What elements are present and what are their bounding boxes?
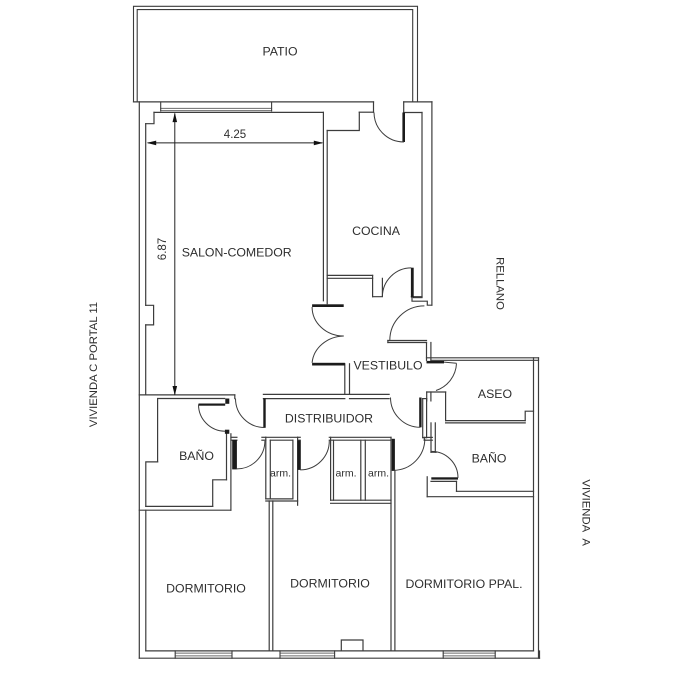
svg-text:arm.: arm. [336, 468, 357, 480]
svg-text:SALON-COMEDOR: SALON-COMEDOR [182, 245, 292, 259]
svg-text:BAÑO: BAÑO [179, 449, 214, 463]
svg-text:4.25: 4.25 [224, 129, 246, 141]
svg-text:DORMITORIO PPAL.: DORMITORIO PPAL. [405, 577, 522, 591]
svg-text:COCINA: COCINA [352, 224, 401, 238]
svg-text:arm.: arm. [368, 468, 389, 480]
svg-text:RELLANO: RELLANO [494, 257, 506, 310]
svg-text:DISTRIBUIDOR: DISTRIBUIDOR [285, 411, 373, 425]
svg-text:VIVIENDA C PORTAL 11: VIVIENDA C PORTAL 11 [88, 302, 100, 427]
svg-text:VESTIBULO: VESTIBULO [353, 359, 422, 373]
svg-text:DORMITORIO: DORMITORIO [166, 581, 246, 595]
svg-text:PATIO: PATIO [262, 45, 297, 59]
svg-text:6.87: 6.87 [157, 238, 169, 260]
svg-text:ASEO: ASEO [478, 387, 512, 401]
svg-text:DORMITORIO: DORMITORIO [290, 576, 370, 590]
svg-text:arm.: arm. [270, 468, 291, 480]
svg-text:BAÑO: BAÑO [472, 451, 507, 465]
svg-text:VIVIENDA A: VIVIENDA A [580, 479, 592, 546]
